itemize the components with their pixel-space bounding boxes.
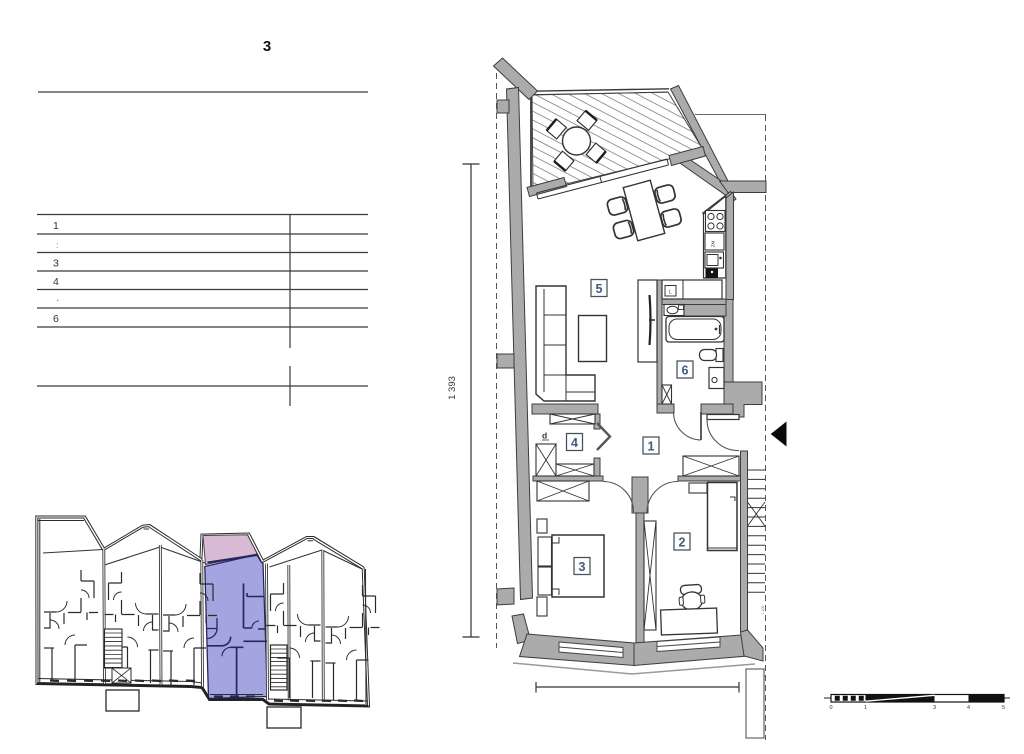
svg-text:4: 4 [571, 436, 578, 450]
svg-text:·: · [56, 295, 59, 306]
svg-text:2: 2 [679, 536, 686, 550]
svg-text:6: 6 [53, 313, 59, 325]
svg-text:1 393: 1 393 [447, 376, 458, 400]
svg-text::: : [56, 240, 59, 250]
svg-text:L: L [669, 290, 672, 296]
svg-text:3: 3 [579, 560, 586, 574]
svg-text:ZM: ZM [711, 241, 716, 248]
svg-text:1: 1 [864, 705, 867, 711]
svg-text:3: 3 [53, 258, 59, 270]
svg-text:6: 6 [682, 364, 689, 378]
svg-text:5: 5 [1002, 705, 1005, 711]
svg-text:0: 0 [829, 705, 832, 711]
svg-text:1:100: 1:100 [761, 606, 765, 615]
svg-text:d: d [542, 431, 547, 441]
svg-text:3: 3 [933, 705, 936, 711]
svg-text:1: 1 [53, 220, 59, 232]
svg-text:1: 1 [648, 440, 655, 454]
svg-text:3: 3 [263, 38, 271, 55]
svg-text:4: 4 [967, 705, 970, 711]
svg-text:5: 5 [596, 282, 603, 296]
svg-text:4: 4 [53, 276, 59, 288]
